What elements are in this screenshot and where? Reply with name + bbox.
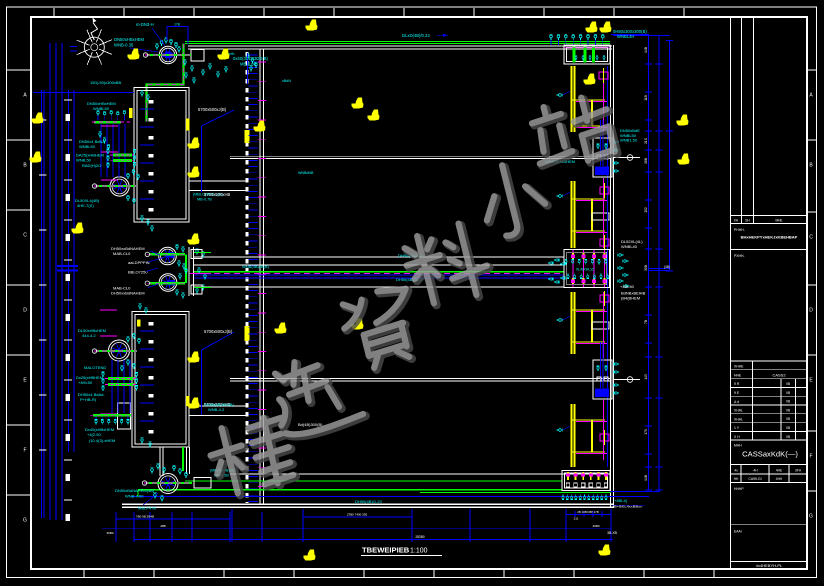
- svg-text:CA99-GI: CA99-GI: [748, 477, 761, 481]
- svg-text:VB: VB: [786, 382, 790, 386]
- svg-text:XL4(XHL)C: XL4(XHL)C: [576, 268, 595, 272]
- svg-text:11B: 11B: [644, 95, 648, 100]
- svg-text:4x4HEBYH-PL: 4x4HEBYH-PL: [756, 563, 783, 568]
- svg-text:150(-50)x300xBB: 150(-50)x300xBB: [90, 80, 121, 85]
- svg-text:28B: 28B: [160, 524, 165, 528]
- svg-text:BHxHEKPYxHEKJxKBEHBAP: BHxHEKPYxHEKJxKBEHBAP: [741, 235, 798, 240]
- svg-text:14B: 14B: [644, 475, 648, 481]
- svg-text:+4HL50: +4HL50: [78, 380, 93, 385]
- svg-text:(10.4(3)-xHEM: (10.4(3)-xHEM: [89, 438, 115, 443]
- svg-text:A d: A d: [734, 400, 739, 404]
- svg-text:17B: 17B: [174, 23, 180, 27]
- svg-text:m-DN3-H: m-DN3-H: [136, 22, 154, 27]
- svg-text:VB: VB: [786, 417, 790, 421]
- svg-text:4HE-7(X): 4HE-7(X): [77, 203, 94, 208]
- svg-text:WNBL40: WNBL40: [621, 244, 638, 249]
- svg-text:HHE: HHE: [734, 373, 742, 377]
- svg-text:CASS2: CASS2: [772, 372, 786, 377]
- svg-text:49B0: 49B0: [592, 524, 599, 528]
- svg-text:MB-0.0B: MB-0.0B: [240, 62, 256, 67]
- svg-text:VB: VB: [786, 426, 790, 430]
- svg-text:DN50xHBxHEM: DN50xHBxHEM: [114, 37, 145, 42]
- svg-text:+4BL40: +4BL40: [620, 284, 635, 289]
- svg-text:444-4.2: 444-4.2: [82, 333, 96, 338]
- svg-text:WNB-0.35: WNB-0.35: [114, 43, 134, 48]
- svg-text:152: 152: [644, 207, 648, 213]
- svg-text:MHE: MHE: [775, 219, 782, 223]
- svg-text:aaLDPPPIN: aaLDPPPIN: [128, 260, 150, 265]
- svg-text:0x40(3DDx3DD(B): 0x40(3DDx3DD(B): [233, 56, 269, 61]
- svg-text:5700x500xJ(B): 5700x500xJ(B): [198, 107, 227, 112]
- svg-text:30B: 30B: [644, 265, 648, 271]
- svg-text:F: F: [809, 454, 812, 460]
- svg-text:xBdN: xBdN: [282, 79, 291, 83]
- svg-text:DH50(4B)/1.23: DH50(4B)/1.23: [355, 499, 382, 504]
- svg-text:9 R: 9 R: [734, 382, 740, 386]
- svg-text:WNB(4B)xB(B): WNB(4B)xB(B): [242, 264, 270, 269]
- svg-text:PXHH-: PXHH-: [734, 254, 745, 258]
- svg-text:(4B): (4B): [664, 265, 670, 269]
- svg-text:Bd(4B)300(B): Bd(4B)300(B): [298, 422, 323, 427]
- svg-text:9 E: 9 E: [734, 391, 740, 395]
- svg-text:WNB-7.00: WNB-7.00: [125, 494, 144, 499]
- svg-text:5700x500xHB: 5700x500xHB: [204, 192, 231, 197]
- svg-text:21S: 21S: [644, 138, 648, 144]
- svg-text:1:100: 1:100: [410, 548, 428, 555]
- svg-text:4x: 4x: [734, 469, 738, 473]
- svg-text:PHHH-: PHHH-: [734, 228, 745, 232]
- svg-text:F: F: [23, 448, 26, 454]
- svg-text:C: C: [23, 233, 27, 239]
- svg-text:3B-XB: 3B-XB: [607, 531, 618, 535]
- svg-text:170: 170: [644, 429, 648, 435]
- svg-text:BBLO7250: BBLO7250: [128, 270, 148, 275]
- svg-text:HH: HH: [734, 477, 739, 481]
- svg-text:18B: 18B: [644, 158, 648, 164]
- svg-text:14B: 14B: [644, 47, 648, 53]
- svg-text:WNB.50: WNB.50: [76, 158, 92, 163]
- svg-text:MB-0.7B: MB-0.7B: [197, 198, 212, 202]
- svg-text:VB: VB: [786, 391, 790, 395]
- svg-text:HHHP: HHHP: [734, 487, 744, 491]
- svg-text:4HE: 4HE: [776, 469, 782, 473]
- svg-text:EAAr: EAAr: [734, 530, 743, 534]
- svg-text:WNBL50: WNBL50: [93, 106, 110, 111]
- svg-text:XHAL: XHAL: [734, 417, 743, 421]
- svg-text:DH50xxBdNAHEM: DH50xxBdNAHEM: [111, 291, 145, 296]
- svg-text:4HH: 4HH: [776, 477, 783, 481]
- svg-text:WNB-4.2: WNB-4.2: [208, 407, 225, 412]
- svg-text:P+HB-R): P+HB-R): [80, 397, 97, 402]
- svg-text:SH: SH: [745, 219, 750, 223]
- svg-text:283B0: 283B0: [415, 535, 424, 539]
- svg-text:1 Y: 1 Y: [734, 426, 740, 430]
- svg-text:MBLP47B: MBLP47B: [138, 506, 156, 511]
- svg-text:X H: X H: [734, 435, 740, 439]
- svg-text:5700x500xJ(B): 5700x500xJ(B): [204, 329, 233, 334]
- svg-text:TBEWEIPIEB: TBEWEIPIEB: [362, 546, 410, 555]
- svg-text:D: D: [809, 308, 813, 314]
- svg-text:MHH: MHH: [734, 444, 742, 448]
- svg-text:MALOTEND: MALOTEND: [84, 365, 106, 370]
- svg-text:C: C: [809, 235, 813, 241]
- svg-text:G: G: [809, 514, 813, 520]
- svg-text:7B0 9B 2B4B: 7B0 9B 2B4B: [136, 515, 154, 519]
- svg-text:36B0: 36B0: [106, 531, 113, 535]
- svg-text:D: D: [23, 308, 27, 314]
- svg-text:RAD(H)2O: RAD(H)2O: [82, 163, 101, 168]
- svg-text:2B 1XB FBP 17B: 2B 1XB FBP 17B: [577, 510, 599, 514]
- svg-text:MAB-CL0: MAB-CL0: [113, 251, 131, 256]
- svg-text:27B0 7400 350: 27B0 7400 350: [347, 513, 368, 517]
- svg-text:7B: 7B: [644, 320, 648, 324]
- svg-text:3FH: 3FH: [795, 469, 802, 473]
- svg-text:DLxD(4B)/0.23: DLxD(4B)/0.23: [402, 33, 430, 38]
- svg-text:-4H: -4H: [752, 469, 758, 473]
- svg-text:XHAL: XHAL: [734, 409, 743, 413]
- svg-text:VB: VB: [786, 435, 790, 439]
- svg-text:XH: XH: [734, 219, 739, 223]
- svg-text:VB: VB: [786, 408, 790, 412]
- svg-text:+4(2.50: +4(2.50: [87, 432, 101, 437]
- svg-text:+4BL4(: +4BL4(: [614, 498, 628, 503]
- svg-text:(B4(BHEM: (B4(BHEM: [621, 296, 640, 301]
- svg-text:WNB1.50: WNB1.50: [620, 138, 638, 143]
- svg-text:XHHE: XHHE: [734, 365, 744, 369]
- svg-text:211: 211: [574, 517, 579, 521]
- svg-text:VB: VB: [786, 400, 790, 404]
- svg-text:WNBdNB: WNBdNB: [298, 171, 314, 175]
- svg-text:143: 143: [644, 374, 648, 380]
- svg-text:WNBL50: WNBL50: [79, 144, 96, 149]
- svg-text:DN50xBdNAHEM(4B): DN50xBdNAHEM(4B): [115, 488, 155, 493]
- svg-text:G: G: [23, 518, 27, 524]
- svg-text:CASSaxKdK(—): CASSaxKdK(—): [742, 450, 798, 459]
